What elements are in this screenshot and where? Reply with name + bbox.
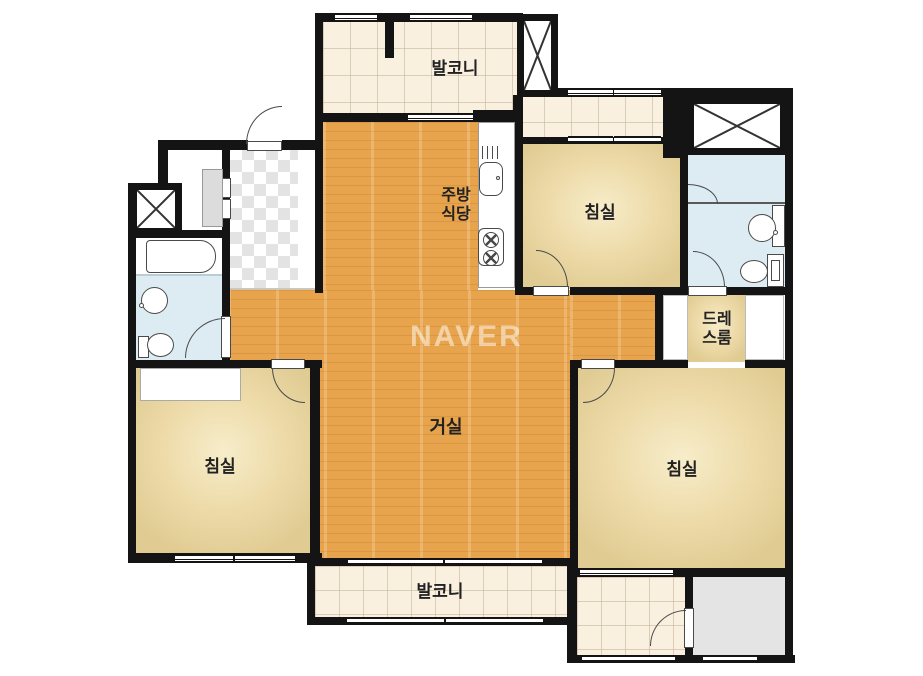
kitchen-label-line1: 주방	[441, 187, 470, 204]
entrance-side-strip	[298, 148, 315, 289]
cooktop-burner-icon	[483, 250, 499, 266]
bedroom-left-label: 침실	[180, 457, 260, 477]
window	[235, 554, 295, 563]
faucet-dot	[496, 176, 500, 180]
entrance-floor	[230, 148, 298, 289]
window	[703, 655, 757, 663]
bedroom-right-label: 침실	[642, 460, 722, 480]
window	[614, 136, 661, 144]
wall	[615, 360, 688, 368]
naver-watermark: NAVER	[410, 320, 523, 354]
elevator-shaft-icon	[130, 183, 182, 235]
window	[445, 558, 542, 566]
wall	[315, 13, 323, 293]
wall	[680, 143, 688, 295]
window	[175, 554, 233, 563]
window	[408, 113, 473, 122]
wash-basin-left-icon	[141, 287, 168, 314]
wall	[158, 140, 168, 188]
window	[568, 136, 613, 144]
window	[347, 617, 444, 625]
window	[335, 13, 377, 22]
window	[580, 568, 673, 577]
wall	[310, 360, 320, 563]
toilet-tank-lid	[771, 260, 780, 281]
wall	[745, 360, 793, 368]
bathroom-right-door-leaf	[688, 286, 727, 296]
wall	[515, 137, 523, 295]
window	[582, 655, 675, 663]
bedroom-top-door-leaf	[533, 286, 569, 296]
balcony-top-label: 발코니	[405, 59, 505, 79]
bathroom-left-divider	[136, 274, 222, 276]
wall	[158, 140, 248, 150]
duct-shaft-right-icon	[687, 97, 787, 155]
wall	[570, 360, 578, 577]
wall	[570, 287, 688, 295]
dressing-label-line2: 스룸	[702, 330, 731, 347]
wall	[222, 148, 230, 318]
duct-shaft-top-icon	[517, 14, 558, 97]
kitchen-label-line2: 식당	[441, 206, 470, 223]
wall	[307, 558, 315, 625]
kitchen-label: 주방 식당	[416, 186, 496, 224]
dressing-room-label: 드레 스룸	[677, 310, 757, 348]
wardrobe-icon	[140, 368, 241, 401]
toilet-left-bowl-icon	[147, 333, 174, 357]
floor-plan: 발코니 주방 식당 침실 드레 스룸 거실 침실 침실 발코니 NAVER	[0, 0, 923, 676]
wash-basin-right-icon	[748, 214, 776, 242]
window	[410, 13, 472, 22]
shoe-closet-icon	[202, 169, 223, 227]
utility-room-floor	[693, 577, 785, 655]
wall	[128, 183, 136, 563]
dressing-label-line1: 드레	[702, 311, 731, 328]
wall	[685, 577, 693, 610]
window	[568, 88, 613, 97]
window	[348, 558, 443, 566]
wall	[128, 360, 273, 368]
bedroom-top-label: 침실	[560, 203, 640, 223]
living-room-label: 거실	[406, 417, 486, 439]
cooktop-burner-icon	[483, 232, 499, 248]
entrance-threshold	[230, 288, 315, 290]
wall	[385, 14, 394, 58]
window	[614, 88, 661, 97]
entrance-door-swing	[246, 106, 282, 144]
bathtub-icon	[146, 240, 216, 273]
balcony-bottom-label: 발코니	[390, 582, 490, 602]
toilet-right-bowl-icon	[740, 260, 768, 283]
basin-drain-dot	[139, 303, 144, 308]
wall	[282, 140, 323, 150]
window	[446, 617, 543, 625]
balcony-upper-right-floor	[517, 95, 663, 137]
wall	[785, 90, 793, 663]
wall	[655, 292, 663, 368]
basin-drain-dot	[773, 230, 778, 235]
hallway-right-floor	[570, 292, 655, 362]
vent-hood-icon	[482, 146, 502, 159]
wall	[727, 287, 793, 295]
